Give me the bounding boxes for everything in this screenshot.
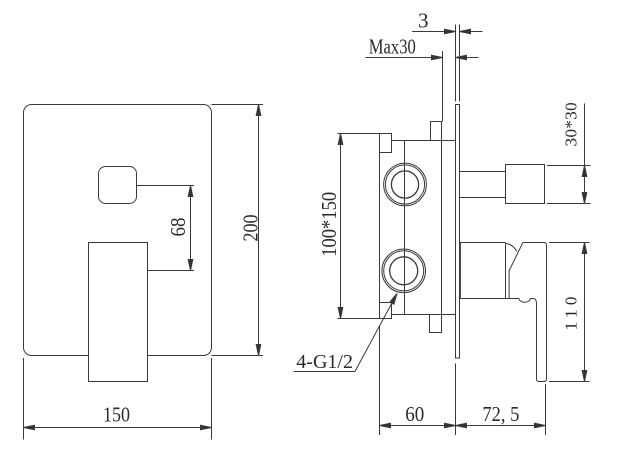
svg-text:110: 110 (562, 292, 581, 330)
svg-text:3: 3 (418, 9, 429, 33)
svg-text:60: 60 (405, 402, 424, 426)
svg-text:30*30: 30*30 (562, 102, 581, 147)
svg-text:72, 5: 72, 5 (482, 402, 519, 426)
svg-text:200: 200 (239, 215, 263, 242)
svg-text:150: 150 (103, 403, 130, 427)
svg-text:Max30: Max30 (369, 34, 416, 58)
svg-text:4-G1/2: 4-G1/2 (296, 351, 353, 373)
svg-text:100*150: 100*150 (317, 192, 341, 257)
svg-text:68: 68 (166, 218, 190, 237)
